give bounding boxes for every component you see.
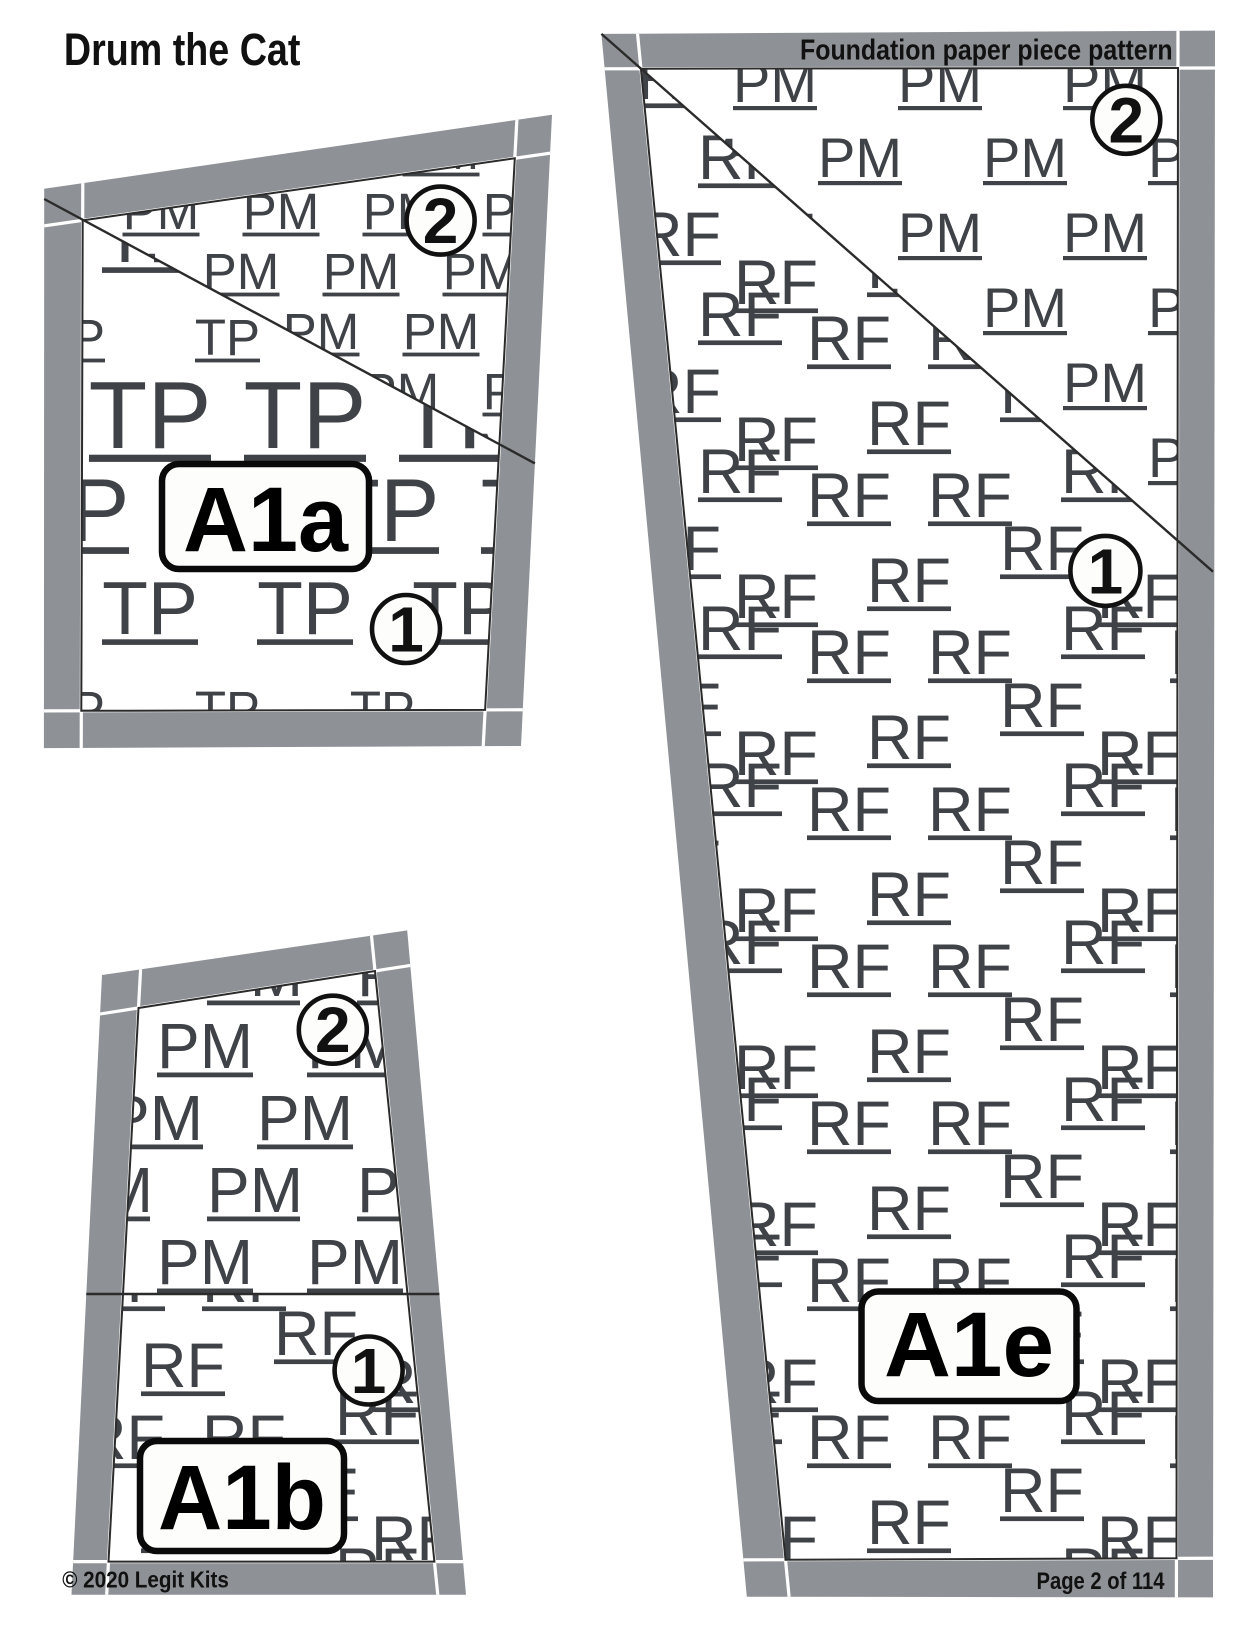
svg-text:2: 2 <box>315 994 351 1066</box>
svg-text:A1b: A1b <box>158 1447 326 1549</box>
svg-text:1: 1 <box>388 594 424 666</box>
svg-text:Drum the Cat: Drum the Cat <box>64 24 301 75</box>
svg-text:2: 2 <box>423 185 459 257</box>
svg-text:A1e: A1e <box>884 1294 1054 1396</box>
svg-text:Foundation paper piece pattern: Foundation paper piece pattern <box>800 34 1173 66</box>
svg-text:© 2020 Legit Kits: © 2020 Legit Kits <box>62 1566 229 1592</box>
svg-text:1: 1 <box>1088 535 1124 607</box>
svg-text:2: 2 <box>1109 84 1145 156</box>
svg-text:A1a: A1a <box>183 469 349 571</box>
svg-text:1: 1 <box>351 1335 387 1407</box>
svg-text:Page 2 of 114: Page 2 of 114 <box>1037 1568 1165 1595</box>
